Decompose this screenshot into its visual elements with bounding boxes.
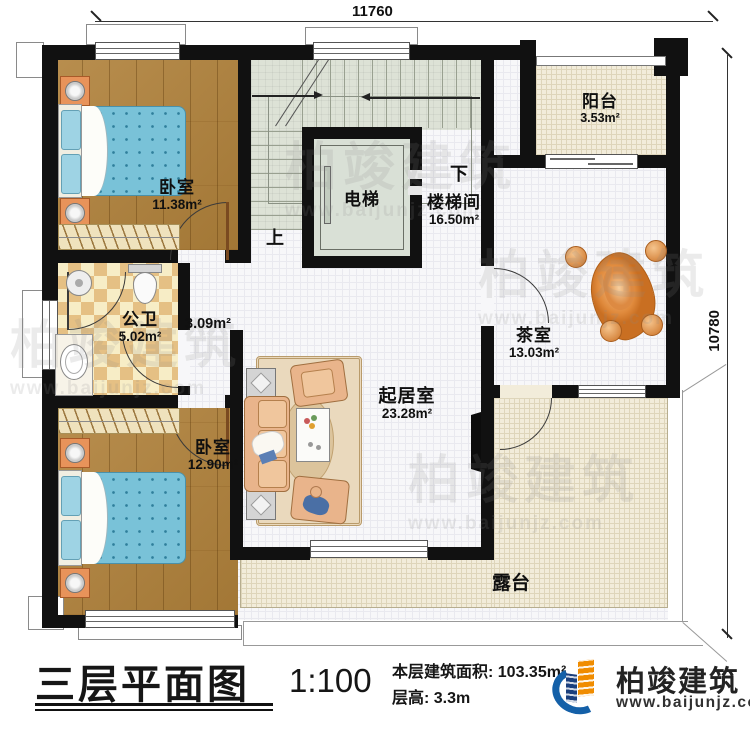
- table-item: [308, 442, 313, 447]
- dimension-tick: [707, 10, 718, 21]
- pillow: [61, 520, 81, 560]
- logo-website-text: www.baijunjz.com: [616, 694, 750, 712]
- pillow: [61, 110, 81, 150]
- dimension-value-right: 10780: [706, 310, 723, 352]
- flower-decoration: [309, 423, 315, 429]
- room-label-elevator: 电梯: [330, 190, 394, 209]
- window: [310, 540, 428, 558]
- dimension-line-right: [727, 55, 728, 638]
- wall: [42, 395, 178, 408]
- terrace-parapet-line: [243, 621, 688, 622]
- lamp-icon: [65, 443, 85, 463]
- window: [313, 42, 410, 60]
- room-label-bedroom-top: 卧室 11.38m²: [112, 178, 242, 212]
- lamp-icon: [65, 573, 85, 593]
- balcony-railing: [536, 56, 666, 66]
- wardrobe: [58, 408, 180, 434]
- logo-building-icon: [566, 673, 577, 703]
- logo-building-icon: [578, 659, 594, 697]
- window: [85, 610, 235, 628]
- pillow: [61, 154, 81, 194]
- title-underline: [35, 709, 273, 711]
- terrace-parapet-line: [243, 621, 244, 646]
- wall: [42, 250, 178, 263]
- roof-edge-diagonal: [682, 622, 727, 662]
- lamp-icon: [65, 81, 85, 101]
- room-label-tea-room: 茶室 13.03m²: [492, 326, 576, 360]
- dimension-value-top: 11760: [352, 3, 393, 20]
- sink-basin-inner: [65, 350, 83, 374]
- stair-direction-line: [370, 97, 480, 99]
- floor-height-note: 层高: 3.3m: [392, 684, 470, 708]
- room-label-living-room: 起居室 23.28m²: [352, 386, 462, 421]
- stair-direction-line: [252, 95, 316, 97]
- tea-stool: [565, 246, 587, 268]
- stair-down-label: 下: [450, 160, 468, 186]
- room-label-balcony: 阳台 3.53m²: [560, 92, 640, 125]
- end-table: [246, 490, 276, 520]
- pillow: [61, 476, 81, 516]
- tv: [471, 412, 481, 472]
- drawing-scale: 1:100: [289, 662, 372, 700]
- bed-sheet: [80, 106, 108, 196]
- wall: [666, 76, 680, 398]
- room-label-hallway: 3.09m²: [178, 316, 238, 332]
- table-item: [316, 445, 321, 450]
- dimension-tick: [90, 10, 101, 21]
- elevator-door-gap: [408, 170, 422, 179]
- stair-up-label: 上: [266, 224, 284, 250]
- tea-stool: [641, 314, 663, 336]
- terrace-parapet-line: [243, 645, 703, 646]
- dimension-line-top: [95, 21, 713, 22]
- end-table: [246, 368, 276, 398]
- roof-edge-diagonal: [682, 364, 726, 393]
- shower-head-center: [75, 279, 83, 287]
- wall: [230, 547, 310, 560]
- floor-plan-canvas: 柏竣建筑 www.baijunjz.com 柏竣建筑 www.baijunjz.…: [0, 0, 750, 729]
- person-head: [310, 486, 322, 498]
- armchair-cushion: [300, 368, 335, 398]
- wall: [428, 547, 494, 560]
- tea-stool: [645, 240, 667, 262]
- sofa-cushion: [258, 400, 287, 428]
- wall: [520, 40, 536, 168]
- wall-bump-out: [16, 42, 44, 78]
- window: [95, 42, 180, 60]
- door-opening: [500, 385, 552, 398]
- room-label-stairwell: 楼梯间 16.50m²: [412, 193, 496, 227]
- bed-sheet: [80, 472, 108, 564]
- wall: [238, 45, 251, 263]
- room-label-terrace: 露台: [492, 568, 530, 595]
- sliding-door: [545, 154, 638, 169]
- drawing-title: 三层平面图: [35, 652, 250, 710]
- terrace-floor-bottom: [240, 558, 494, 608]
- room-label-bathroom: 公卫 5.02m²: [95, 310, 185, 344]
- wardrobe: [58, 224, 180, 250]
- room-label-bedroom-bottom: 卧室 12.90m²: [158, 438, 268, 472]
- title-underline: [35, 703, 273, 706]
- tea-stool: [600, 320, 622, 342]
- stair-arrow-icon: [314, 91, 323, 99]
- floor-area-note: 本层建筑面积: 103.35m²: [392, 658, 566, 682]
- flower-decoration: [311, 415, 317, 421]
- stair-arrow-icon: [361, 93, 370, 101]
- lamp-icon: [65, 203, 85, 223]
- window: [578, 385, 646, 398]
- door-opening: [481, 266, 494, 326]
- terrace-parapet-line: [682, 390, 683, 622]
